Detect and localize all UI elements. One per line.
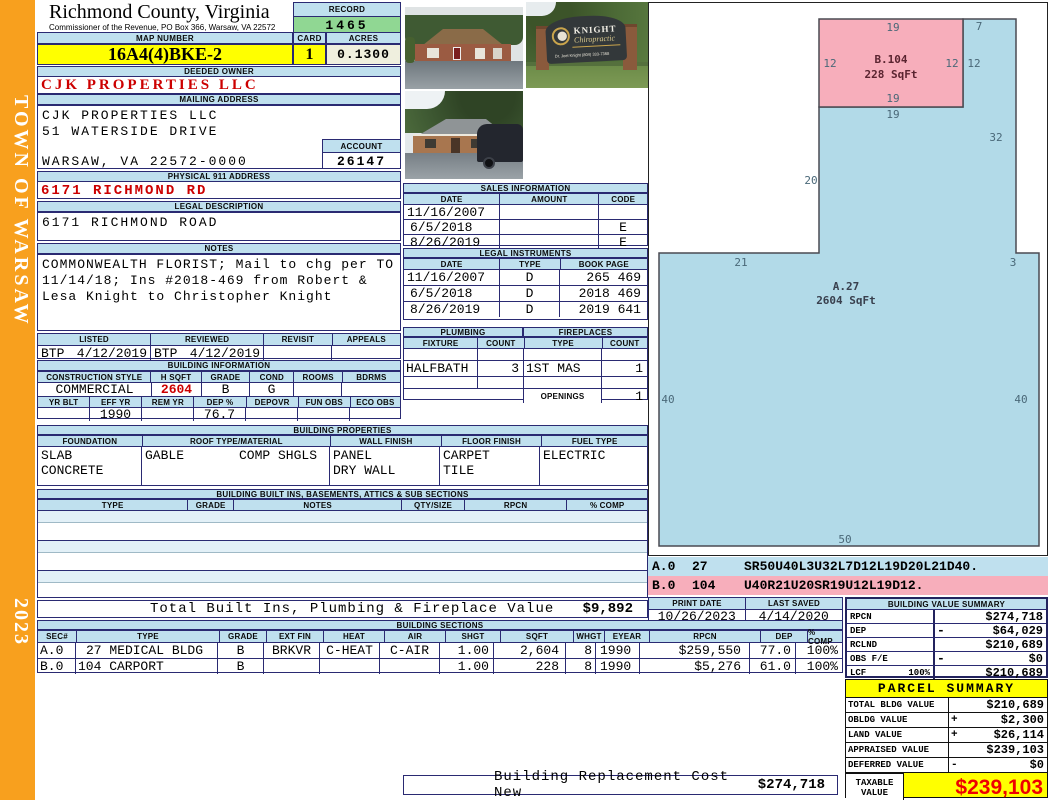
sign-contact: Dr. Joel Knight (804) 333-7368 <box>555 50 625 59</box>
built-ins-table: TYPE GRADE NOTES QTY/SIZE RPCN % COMP <box>37 499 648 598</box>
listed-date: 4/12/2019 <box>77 346 147 361</box>
physical-address-value: 6171 RICHMOND RD <box>37 182 401 199</box>
instrument-book-page: 265 469 <box>560 270 647 285</box>
ext-fin-value: BRKVR <box>264 643 320 658</box>
col-pct-comp: % COMP <box>567 500 647 510</box>
floor-line: CARPET <box>443 448 490 463</box>
footprint-sketch: 19 7 12 B.104 228 SqFt 12 12 19 19 32 20… <box>649 3 1047 555</box>
map-number-label: MAP NUMBER <box>37 32 293 44</box>
sketch-panel: 19 7 12 B.104 228 SqFt 12 12 19 19 32 20… <box>648 2 1048 556</box>
built-ins-empty-row <box>38 523 647 541</box>
sale-amount <box>500 235 599 249</box>
built-ins-total-row: Total Built Ins, Plumbing & Fireplace Va… <box>37 600 648 618</box>
bvs-sign <box>935 666 951 679</box>
parcel-sign <box>949 698 963 712</box>
parcel-value: $0 <box>963 758 1047 772</box>
photo-building-rear <box>405 91 523 179</box>
ecoobs-value <box>350 408 400 421</box>
sign-emblem <box>551 27 570 46</box>
window <box>493 48 502 59</box>
parcel-label: OBLDG VALUE <box>846 713 949 727</box>
parcel-value: $26,114 <box>963 728 1047 742</box>
built-ins-empty-row <box>38 583 647 600</box>
sale-amount <box>500 220 599 234</box>
remyr-value <box>142 408 194 421</box>
bvs-row: RCLND $210,689 <box>847 638 1046 652</box>
comp-value: 100% <box>796 643 842 658</box>
rpcn-value: $259,550 <box>640 643 750 658</box>
building-section-row: B.0 104 CARPORT B 1.00 228 8 1990 $5,276… <box>38 659 842 674</box>
sketch-code-vector: U40R21U20SR19U12L19D12. <box>744 578 923 593</box>
bvs-sign: - <box>935 624 951 637</box>
parcel-summary: PARCEL SUMMARY TOTAL BLDG VALUE $210,689… <box>845 679 1048 798</box>
foundation-line: SLAB <box>41 448 72 463</box>
bvs-value: $274,718 <box>951 610 1046 623</box>
built-ins-empty-row <box>38 541 647 553</box>
built-ins-title: BUILDING BUILT INS, BASEMENTS, ATTICS & … <box>37 489 648 499</box>
built-ins-empty-row <box>38 511 647 523</box>
parcel-row: OBLDG VALUE + $2,300 <box>846 713 1047 728</box>
col-pct-comp: % COMP <box>808 631 842 642</box>
building-properties-title: BUILDING PROPERTIES <box>37 425 648 435</box>
footer-value: $274,718 <box>758 777 825 793</box>
col-book-page: BOOK PAGE <box>561 259 647 269</box>
grade-value: B <box>218 643 264 658</box>
sign-divider <box>572 44 620 48</box>
notes-line: 11/14/18; Ins #2018-469 from Robert & <box>42 273 400 289</box>
air-value <box>380 659 440 674</box>
physical-address-label: PHYSICAL 911 ADDRESS <box>37 171 401 182</box>
col-whgt: WHGT <box>574 631 605 642</box>
legal-description-label: LEGAL DESCRIPTION <box>37 201 401 212</box>
col-air: AIR <box>385 631 446 642</box>
col-wall-finish: WALL FINISH <box>331 436 442 446</box>
bvs-sign: - <box>935 652 951 665</box>
bvs-row: LCF100% $210,689 <box>847 666 1046 679</box>
sketch-code-b: B.0 104 U40R21U20SR19U12L19D12. <box>648 576 1048 595</box>
whgt-value: 8 <box>566 643 596 658</box>
account-value: 26147 <box>323 153 400 169</box>
sec-value: A.0 <box>38 643 76 658</box>
appeals-value <box>332 346 400 360</box>
col-bdrms: BDRMS <box>343 372 400 382</box>
bvs-sign <box>935 610 951 623</box>
col-shgt: SHGT <box>446 631 501 642</box>
floor-finish-value: CARPET TILE <box>440 447 540 486</box>
instrument-book-page: 2019 641 <box>560 302 647 317</box>
bvs-label: RPCN <box>850 612 872 622</box>
col-roof: ROOF TYPE/MATERIAL <box>143 436 331 446</box>
legal-instrument-row: 11/16/2007 D 265 469 <box>404 270 647 286</box>
notes-label: NOTES <box>37 243 401 254</box>
bvs-extra: 100% <box>908 668 930 678</box>
map-number-value: 16A4(4)BKE-2 <box>37 44 293 65</box>
record-value: 1465 <box>294 17 400 33</box>
col-sec: SEC# <box>38 631 77 642</box>
hsqft-value: 2604 <box>152 383 202 396</box>
building-value-summary: BUILDING VALUE SUMMARY RPCN $274,718 DEP… <box>845 597 1048 678</box>
record-box: RECORD 1465 <box>293 2 401 32</box>
notes-line: COMMONWEALTH FLORIST; Mail to chg per TO <box>42 257 400 273</box>
parcel-sign: - <box>949 758 963 772</box>
taxable-label-line: VALUE <box>861 788 888 798</box>
parcel-sign <box>949 743 963 757</box>
effyr-value: 1990 <box>90 408 142 421</box>
ext-fin-value <box>264 659 320 674</box>
openings-label: OPENINGS <box>524 389 602 403</box>
parcel-summary-title: PARCEL SUMMARY <box>846 680 1047 698</box>
col-hsqft: H SQFT <box>151 372 201 382</box>
window <box>475 48 485 59</box>
instrument-book-page: 2018 469 <box>560 286 647 301</box>
col-rpcn: RPCN <box>465 500 568 510</box>
sec-value: B.0 <box>38 659 76 674</box>
col-construction-style: CONSTRUCTION STYLE <box>38 372 151 382</box>
built-ins-total-label: Total Built Ins, Plumbing & Fireplace Va… <box>150 601 554 617</box>
taxable-value-row: TAXABLE VALUE $239,103 <box>846 773 1047 800</box>
instrument-date: 8/26/2019 <box>404 302 500 317</box>
dim-label: 12 <box>967 57 980 70</box>
notes-block: COMMONWEALTH FLORIST; Mail to chg per TO… <box>37 254 401 331</box>
legal-instruments-table: DATE TYPE BOOK PAGE 11/16/2007 D 265 469… <box>403 258 648 320</box>
eyear-value: 1990 <box>596 659 640 674</box>
dim-label: 32 <box>989 131 1002 144</box>
col-count: COUNT <box>478 338 524 348</box>
col-yrblt: YR BLT <box>38 397 90 407</box>
instrument-type: D <box>500 302 560 317</box>
bvs-row: OBS F/E - $0 <box>847 652 1046 666</box>
legal-instrument-row: 8/26/2019 D 2019 641 <box>404 302 647 317</box>
photo-building-front <box>405 7 523 89</box>
sales-title: SALES INFORMATION <box>403 183 648 193</box>
heat-value <box>320 659 380 674</box>
reviewed-by: BTP <box>154 346 177 361</box>
dim-label: 12 <box>945 57 958 70</box>
col-grade: GRADE <box>220 631 267 642</box>
roof-material: COMP SHGLS <box>239 448 317 463</box>
legal-instrument-row: 6/5/2018 D 2018 469 <box>404 286 647 302</box>
building-section-row: A.0 27 MEDICAL BLDG B BRKVR C-HEAT C-AIR… <box>38 643 842 659</box>
reviewed-date: 4/12/2019 <box>190 346 260 361</box>
plumbing-fixture: HALFBATH <box>404 361 478 376</box>
fireplaces-title: FIREPLACES <box>523 327 648 337</box>
built-ins-total-value: $9,892 <box>583 601 633 617</box>
bvs-value: $64,029 <box>951 624 1046 637</box>
col-rpcn: RPCN <box>650 631 761 642</box>
roof-value: GABLE COMP SHGLS <box>142 447 330 486</box>
door <box>451 138 460 153</box>
taxable-label-line: TAXABLE <box>856 778 894 788</box>
sign-board: KNIGHT Chiropractic Dr. Joel Knight (804… <box>545 14 627 64</box>
col-ecoobs: ECO OBS <box>351 397 400 407</box>
plumbing-count: 3 <box>478 361 524 376</box>
col-eyear: EYEAR <box>605 631 650 642</box>
roof-type: GABLE <box>145 448 184 463</box>
funobs-value <box>298 408 350 421</box>
construction-style-value: COMMERCIAL <box>38 383 152 396</box>
fuel-line: ELECTRIC <box>543 448 605 463</box>
bdrms-value <box>342 383 400 396</box>
grade-value: B <box>202 383 250 396</box>
window <box>425 139 436 148</box>
building-information-title: BUILDING INFORMATION <box>37 360 401 371</box>
dim-label: 40 <box>1014 393 1027 406</box>
col-sqft: SQFT <box>501 631 574 642</box>
sqft-value: 228 <box>494 659 566 674</box>
parcel-sign: + <box>949 728 963 742</box>
yrblt-value <box>38 408 90 421</box>
taxable-value-label: TAXABLE VALUE <box>846 773 904 800</box>
cond-value: G <box>250 383 294 396</box>
mailing-address-label: MAILING ADDRESS <box>37 94 401 105</box>
instrument-date: 11/16/2007 <box>404 270 500 285</box>
record-label: RECORD <box>294 3 400 17</box>
built-ins-empty-row <box>38 571 647 583</box>
bvs-value: $0 <box>951 652 1046 665</box>
revisit-value <box>264 346 332 360</box>
foundation-value: SLAB CONCRETE <box>38 447 142 486</box>
section-a-sqft: 2604 SqFt <box>816 294 876 307</box>
parcel-sign: + <box>949 713 963 727</box>
dim-label: 19 <box>886 21 899 34</box>
plumbing-title: PLUMBING <box>403 327 523 337</box>
dim-label: 19 <box>886 108 899 121</box>
col-remyr: REM YR <box>142 397 194 407</box>
col-amount: AMOUNT <box>500 194 599 204</box>
sale-date: 11/16/2007 <box>404 205 500 219</box>
col-type: TYPE <box>77 631 220 642</box>
sale-code: E <box>599 220 647 234</box>
rooms-value <box>294 383 342 396</box>
section-b-label: B.104 <box>874 53 907 66</box>
acres-value: 0.1300 <box>326 44 401 65</box>
dim-label: 50 <box>838 533 851 546</box>
county-title: Richmond County, Virginia <box>37 2 293 23</box>
dim-label: 12 <box>823 57 836 70</box>
type-value: 104 CARPORT <box>76 659 218 674</box>
openings-count: 1 <box>602 389 647 403</box>
property-record-card: TOWN OF WARSAW 2023 Richmond County, Vir… <box>0 0 1050 800</box>
town-sidebar: TOWN OF WARSAW 2023 <box>0 0 35 800</box>
bvs-value: $210,689 <box>951 666 1046 679</box>
dep-value: 77.0 <box>750 643 796 658</box>
heat-value: C-HEAT <box>320 643 380 658</box>
sale-date: 6/5/2018 <box>404 220 500 234</box>
sales-row: 11/16/2007 <box>404 205 647 220</box>
col-type: TYPE <box>500 259 561 269</box>
acres-label: ACRES <box>326 32 401 44</box>
appeals-label: APPEALS <box>333 334 400 345</box>
col-rooms: ROOMS <box>294 372 342 382</box>
whgt-value: 8 <box>566 659 596 674</box>
sketch-code-sec: A.0 <box>648 559 692 574</box>
deeded-owner-value: CJK PROPERTIES LLC <box>37 77 401 94</box>
comp-value: 100% <box>796 659 842 674</box>
legal-description-value: 6171 RICHMOND ROAD <box>37 212 401 241</box>
bvs-row: RPCN $274,718 <box>847 610 1046 624</box>
parcel-row: TOTAL BLDG VALUE $210,689 <box>846 698 1047 713</box>
parcel-label: LAND VALUE <box>846 728 949 742</box>
sale-code: E <box>599 235 647 249</box>
sign-subtitle: Chiropractic <box>574 33 624 45</box>
bvs-label: RCLND <box>850 640 877 650</box>
mailing-line: 51 WATERSIDE DRIVE <box>42 124 400 140</box>
parcel-value: $2,300 <box>963 713 1047 727</box>
col-foundation: FOUNDATION <box>38 436 143 446</box>
building-properties-table: FOUNDATION ROOF TYPE/MATERIAL WALL FINIS… <box>37 435 648 486</box>
wall-line: DRY WALL <box>333 463 395 478</box>
col-date: DATE <box>404 259 500 269</box>
parcel-label: APPRAISED VALUE <box>846 743 949 757</box>
bvs-label: DEP <box>850 626 866 636</box>
sketch-code-num: 27 <box>692 559 744 574</box>
listed-value: BTP4/12/2019 <box>38 346 151 360</box>
grade-value: B <box>218 659 264 674</box>
taxable-value: $239,103 <box>904 773 1047 800</box>
air-value: C-AIR <box>380 643 440 658</box>
col-date: DATE <box>404 194 500 204</box>
deeded-owner-label: DEEDED OWNER <box>37 66 401 77</box>
section-a-label: A.27 <box>833 280 860 293</box>
col-dep-pct: DEP % <box>194 397 246 407</box>
sale-code <box>599 205 647 219</box>
sale-amount <box>500 205 599 219</box>
revisit-label: REVISIT <box>264 334 332 345</box>
truck <box>477 124 523 162</box>
fuel-type-value: ELECTRIC <box>540 447 645 486</box>
parcel-label: TOTAL BLDG VALUE <box>846 698 949 712</box>
dep-pct-value: 76.7 <box>194 408 246 421</box>
col-heat: HEAT <box>324 631 385 642</box>
dim-label: 21 <box>734 256 747 269</box>
building-sections-table: SEC# TYPE GRADE EXT FIN HEAT AIR SHGT SQ… <box>37 630 843 673</box>
print-date-label: PRINT DATE <box>649 598 746 609</box>
col-cond: COND <box>250 372 294 382</box>
building-value-summary-title: BUILDING VALUE SUMMARY <box>847 599 1046 610</box>
account-label: ACCOUNT <box>323 140 400 153</box>
built-ins-empty-row <box>38 553 647 571</box>
photo-panel: KNIGHT Chiropractic Dr. Joel Knight (804… <box>405 2 648 180</box>
wall-finish-value: PANEL DRY WALL <box>330 447 440 486</box>
account-box: ACCOUNT 26147 <box>322 139 401 169</box>
listed-by: BTP <box>41 346 64 361</box>
parcel-row: APPRAISED VALUE $239,103 <box>846 743 1047 758</box>
parcel-row: DEFERRED VALUE - $0 <box>846 758 1047 773</box>
instrument-type: D <box>500 270 560 285</box>
col-depovr: DEPOVR <box>247 397 299 407</box>
col-fixture: FIXTURE <box>404 338 478 348</box>
fireplace-type: 1ST MAS <box>524 361 602 376</box>
print-info-table: PRINT DATE LAST SAVED 10/26/2023 4/14/20… <box>648 597 843 622</box>
window <box>427 48 439 58</box>
col-code: CODE <box>599 194 647 204</box>
sketch-code-a: A.0 27 SR50U40L3U32L7D12L19D20L21D40. <box>648 557 1048 576</box>
notes-line: Lesa Knight to Christopher Knight <box>42 289 400 305</box>
depovr-value <box>246 408 298 421</box>
reviewed-value: BTP4/12/2019 <box>151 346 264 360</box>
eyear-value: 1990 <box>596 643 640 658</box>
bvs-label: OBS F/E <box>850 654 888 664</box>
photo-sign: KNIGHT Chiropractic Dr. Joel Knight (804… <box>526 2 648 88</box>
legal-instruments-title: LEGAL INSTRUMENTS <box>403 248 648 258</box>
dep-value: 61.0 <box>750 659 796 674</box>
section-b-sqft: 228 SqFt <box>865 68 918 81</box>
building-sections-title: BUILDING SECTIONS <box>37 620 843 630</box>
col-floor-finish: FLOOR FINISH <box>442 436 543 446</box>
sale-date: 8/26/2019 <box>404 235 500 249</box>
dim-label: 40 <box>661 393 674 406</box>
dim-label: 7 <box>976 20 983 33</box>
bvs-sign <box>935 638 951 651</box>
footer-replacement-cost: Building Replacement Cost New $274,718 <box>403 775 838 795</box>
col-fp-type: TYPE <box>525 338 603 348</box>
listed-label: LISTED <box>38 334 151 345</box>
footer-label: Building Replacement Cost New <box>494 769 758 800</box>
col-effyr: EFF YR <box>90 397 142 407</box>
col-funobs: FUN OBS <box>299 397 351 407</box>
col-dep: DEP <box>761 631 808 642</box>
building-information-table: CONSTRUCTION STYLE H SQFT GRADE COND ROO… <box>37 371 401 419</box>
col-grade: GRADE <box>188 500 234 510</box>
dim-label: 20 <box>804 174 817 187</box>
instrument-type: D <box>500 286 560 301</box>
col-qty-size: QTY/SIZE <box>402 500 465 510</box>
sales-row: 8/26/2019 E <box>404 235 647 249</box>
bvs-value: $210,689 <box>951 638 1046 651</box>
shgt-value: 1.00 <box>440 659 494 674</box>
shgt-value: 1.00 <box>440 643 494 658</box>
card-value: 1 <box>293 44 326 65</box>
col-type: TYPE <box>38 500 188 510</box>
parcel-value: $239,103 <box>963 743 1047 757</box>
dim-label: 19 <box>886 92 899 105</box>
type-value: 27 MEDICAL BLDG <box>76 643 218 658</box>
fireplace-count: 1 <box>602 361 647 376</box>
sketch-code-num: 104 <box>692 578 744 593</box>
door <box>453 47 461 60</box>
sales-table: DATE AMOUNT CODE 11/16/2007 6/5/2018 E 8… <box>403 193 648 246</box>
plumbing-fireplaces-table: FIXTURE COUNT TYPE COUNT HALFBATH 3 1ST … <box>403 337 648 400</box>
town-sidebar-year: 2023 <box>4 598 32 678</box>
last-saved-label: LAST SAVED <box>746 598 842 609</box>
sketch-code-vector: SR50U40L3U32L7D12L19D20L21D40. <box>744 559 978 574</box>
col-grade: GRADE <box>202 372 250 382</box>
truck-wheel <box>483 157 495 169</box>
sqft-value: 2,604 <box>494 643 566 658</box>
col-fp-count: COUNT <box>603 338 647 348</box>
title-block: Richmond County, Virginia Commissioner o… <box>37 2 293 32</box>
review-table: LISTED REVIEWED REVISIT APPEALS BTP4/12/… <box>37 333 401 359</box>
col-fuel-type: FUEL TYPE <box>542 436 647 446</box>
driveway <box>405 61 523 89</box>
bvs-row: DEP - $64,029 <box>847 624 1046 638</box>
parcel-row: LAND VALUE + $26,114 <box>846 728 1047 743</box>
sketch-code-sec: B.0 <box>648 578 692 593</box>
sales-row: 6/5/2018 E <box>404 220 647 235</box>
bush <box>405 37 415 63</box>
dim-label: 3 <box>1010 256 1017 269</box>
card-label: CARD <box>293 32 326 44</box>
instrument-date: 6/5/2018 <box>404 286 500 301</box>
floor-line: TILE <box>443 463 474 478</box>
wall-line: PANEL <box>333 448 372 463</box>
foundation-line: CONCRETE <box>41 463 103 478</box>
parcel-label: DEFERRED VALUE <box>846 758 949 772</box>
town-sidebar-title: TOWN OF WARSAW <box>4 95 32 395</box>
col-notes: NOTES <box>234 500 402 510</box>
col-ext-fin: EXT FIN <box>267 631 324 642</box>
reviewed-label: REVIEWED <box>151 334 264 345</box>
